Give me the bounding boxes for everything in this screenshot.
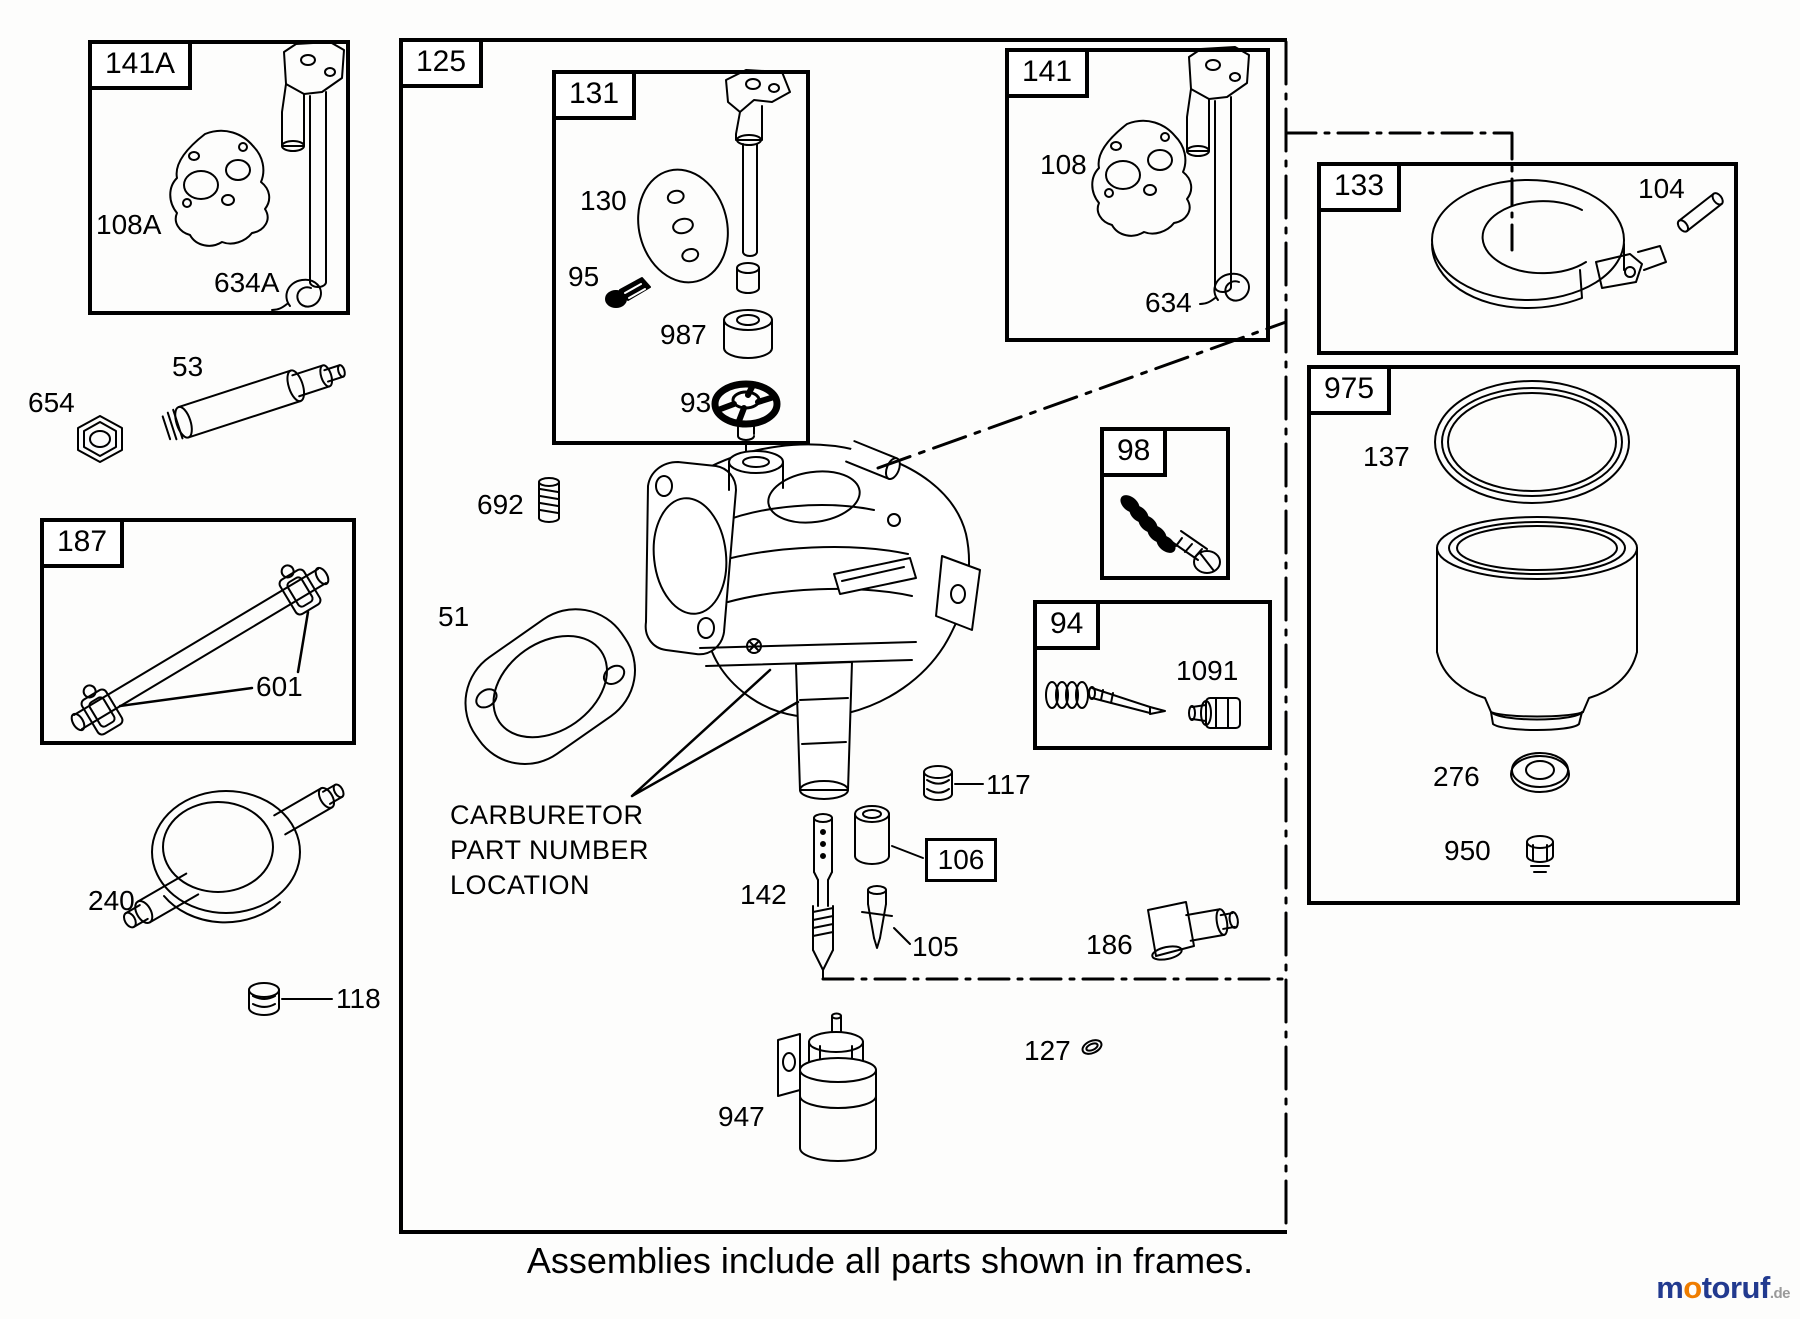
- frame-tab-98: 98: [1104, 431, 1167, 477]
- logo-text-1: m: [1656, 1270, 1683, 1305]
- part-label-130: 130: [580, 186, 627, 216]
- fitting-118-drawing: [249, 983, 332, 1015]
- part-label-186: 186: [1086, 930, 1133, 960]
- part-label-105: 105: [912, 932, 959, 962]
- part-label-654: 654: [28, 388, 75, 418]
- parts-diagram-stage: CARBURETOR PART NUMBER LOCATION Assembli…: [0, 0, 1800, 1319]
- part-label-947: 947: [718, 1102, 765, 1132]
- part-label-142: 142: [740, 880, 787, 910]
- part-label-692: 692: [477, 490, 524, 520]
- part-label-106: 106: [925, 838, 997, 882]
- logo-tld: .de: [1770, 1285, 1790, 1302]
- logo-text-o: o: [1683, 1270, 1701, 1305]
- part-label-1091: 1091: [1176, 656, 1238, 686]
- assembly-frame-141: 141: [1005, 48, 1270, 342]
- frame-tab-975: 975: [1311, 369, 1391, 415]
- nut-654-drawing: [78, 416, 122, 462]
- part-label-53: 53: [172, 352, 203, 382]
- frame-tab-94: 94: [1037, 604, 1100, 650]
- part-label-634A: 634A: [214, 268, 279, 298]
- assembly-frame-187: 187: [40, 518, 356, 745]
- frame-tab-187: 187: [44, 522, 124, 568]
- diagram-caption: Assemblies include all parts shown in fr…: [430, 1240, 1350, 1282]
- part-label-950: 950: [1444, 836, 1491, 866]
- fuel-filter-240-drawing: [120, 779, 348, 933]
- frame-tab-133: 133: [1321, 166, 1401, 212]
- frame-tab-131: 131: [556, 74, 636, 120]
- motoruf-logo[interactable]: motoruf.de: [1656, 1270, 1790, 1306]
- part-label-240: 240: [88, 886, 135, 916]
- part-label-137: 137: [1363, 442, 1410, 472]
- part-label-634: 634: [1145, 288, 1192, 318]
- part-label-93: 93: [680, 388, 711, 418]
- part-label-118: 118: [336, 984, 381, 1014]
- part-label-108A: 108A: [96, 210, 161, 240]
- assembly-frame-98: 98: [1100, 427, 1230, 580]
- part-label-104: 104: [1638, 174, 1685, 204]
- part-label-987: 987: [660, 320, 707, 350]
- part-label-601: 601: [256, 672, 303, 702]
- part-label-108: 108: [1040, 150, 1087, 180]
- part-label-51: 51: [438, 602, 469, 632]
- part-label-117: 117: [986, 770, 1031, 800]
- part-label-95: 95: [568, 262, 599, 292]
- frame-tab-125: 125: [403, 42, 483, 88]
- part-label-276: 276: [1433, 762, 1480, 792]
- logo-text-2: toruf: [1702, 1270, 1770, 1305]
- frame-tab-141A: 141A: [92, 44, 192, 90]
- frame-tab-141: 141: [1009, 52, 1089, 98]
- part-label-127: 127: [1024, 1036, 1071, 1066]
